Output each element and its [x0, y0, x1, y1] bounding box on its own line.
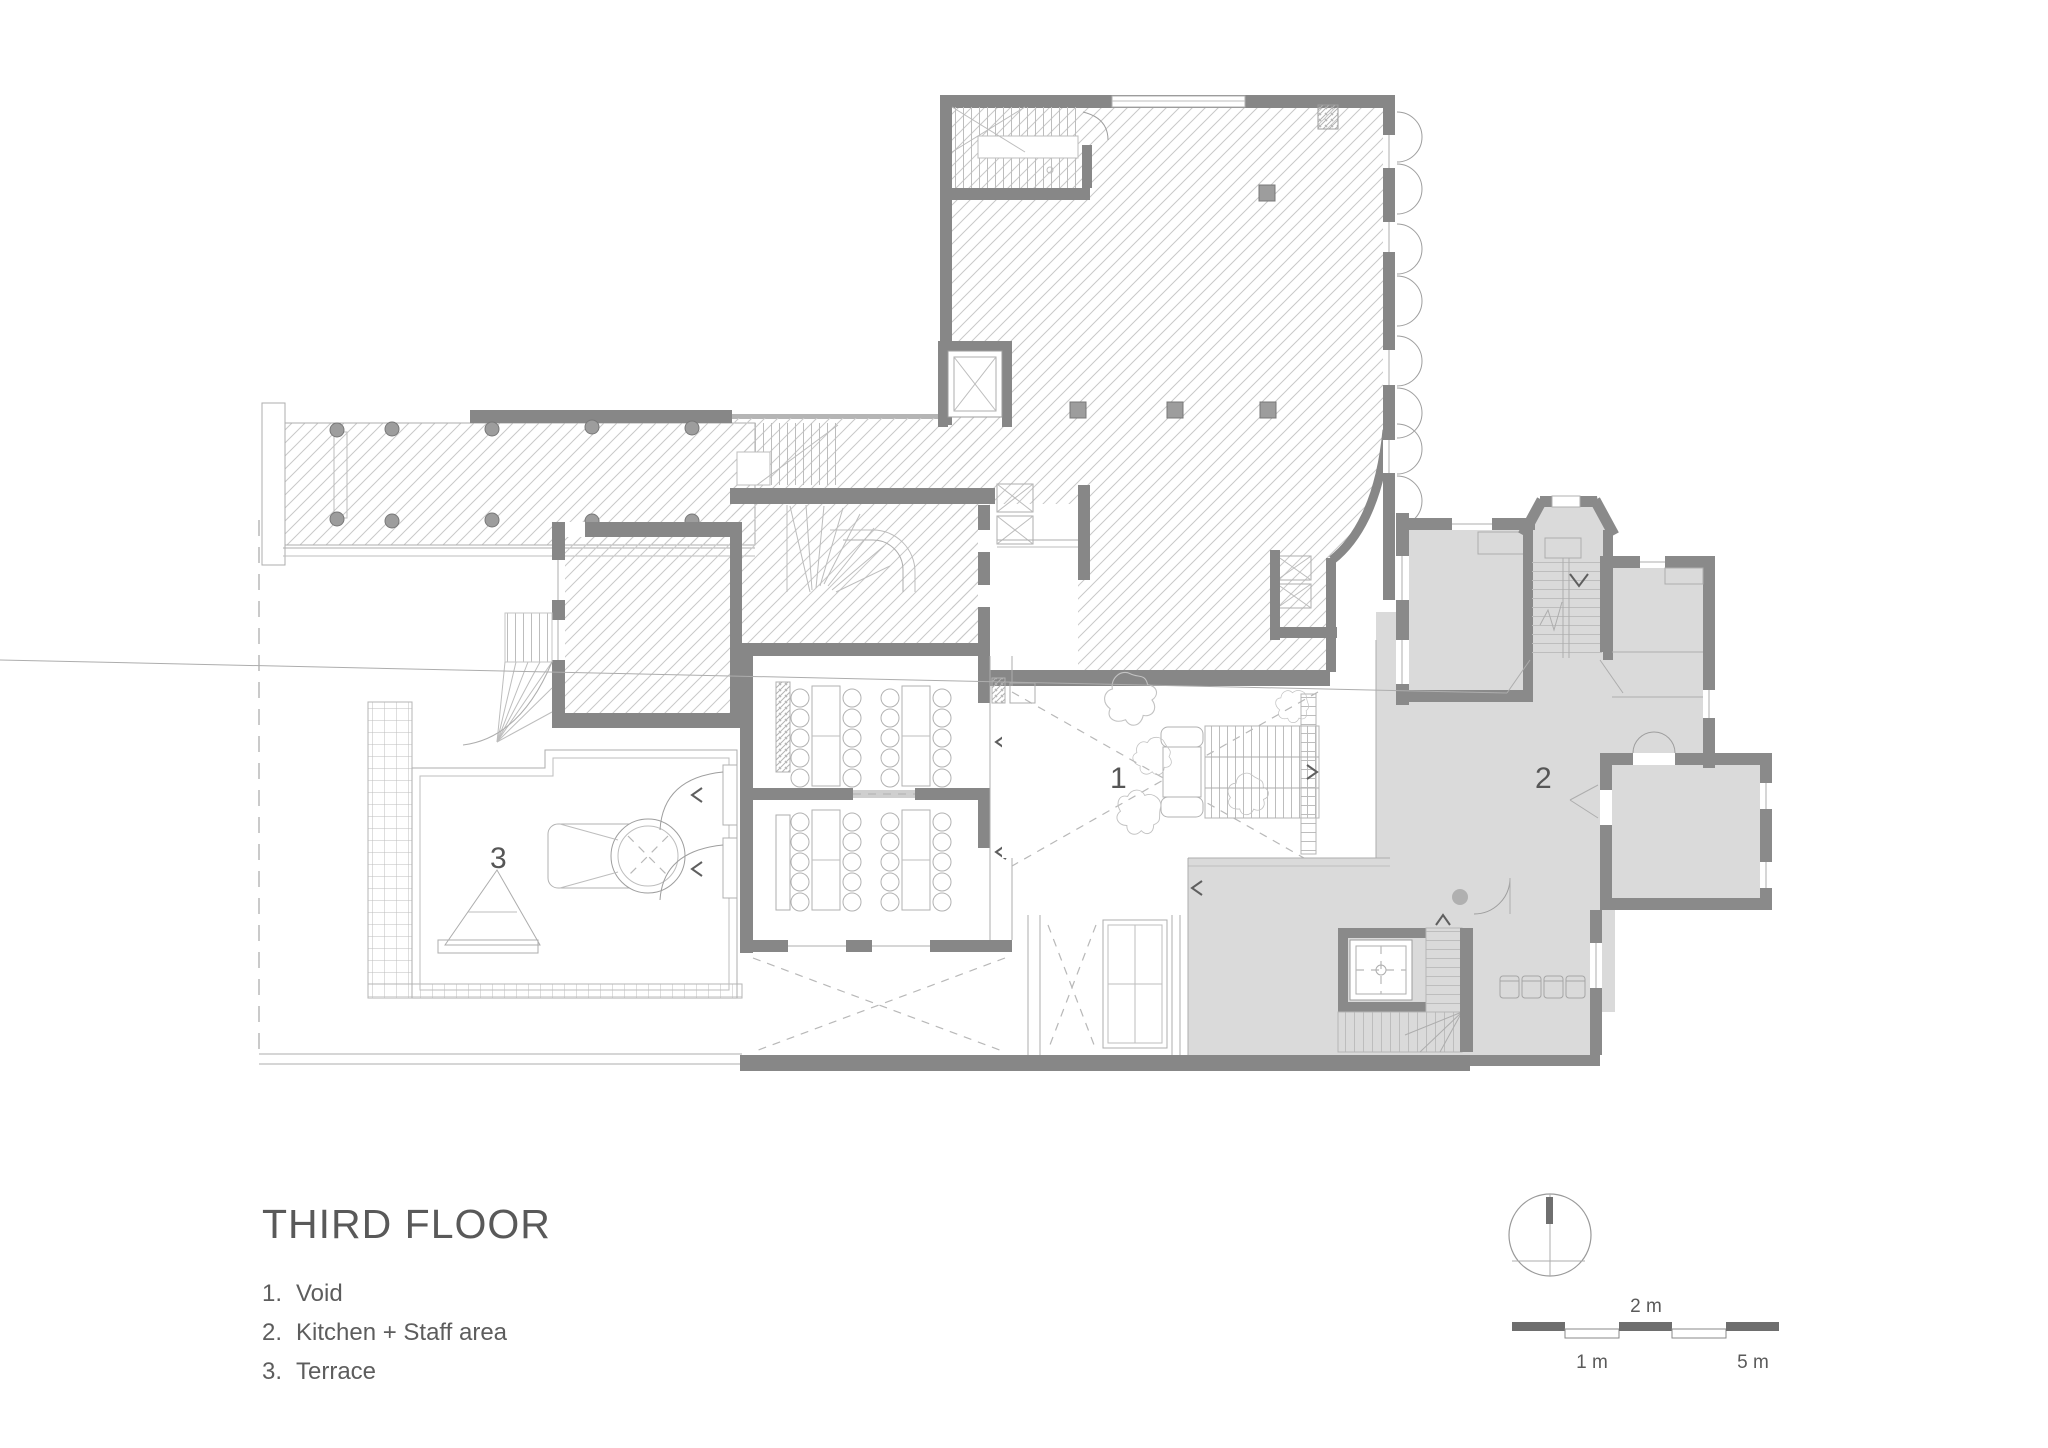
- north-arrow-icon: [1509, 1194, 1591, 1276]
- meeting-rooms: [740, 643, 1012, 953]
- legend-label: Void: [296, 1280, 343, 1308]
- floor-plan-sheet: 1 2 3 2 m 1 m 5 m THIRD FLOOR 1. Void 2.…: [0, 0, 2048, 1448]
- lounge-chair: [438, 870, 540, 953]
- roof-fan-detail: [463, 613, 552, 745]
- tile-strip-bottom: [368, 984, 742, 998]
- legend-number: 2.: [262, 1319, 296, 1347]
- elevator-main: [938, 341, 1012, 427]
- scale-bar: 2 m 1 m 5 m: [1512, 1296, 1779, 1373]
- scale-right-label: 5 m: [1737, 1352, 1769, 1373]
- legend-number: 1.: [262, 1280, 296, 1308]
- legend-label: Kitchen + Staff area: [296, 1319, 507, 1347]
- sofa: [1161, 727, 1203, 817]
- legend-item-terrace: 3. Terrace: [262, 1358, 551, 1386]
- upper-roof-mass: [565, 95, 1422, 713]
- scale-left-label: 1 m: [1576, 1352, 1608, 1373]
- scale-mid-label: 2 m: [1630, 1296, 1662, 1317]
- legend-item-kitchen: 2. Kitchen + Staff area: [262, 1319, 551, 1347]
- legend-item-void: 1. Void: [262, 1280, 551, 1308]
- page-title: THIRD FLOOR: [262, 1201, 551, 1248]
- void-area: [992, 672, 1376, 866]
- terrace-label: 3: [490, 842, 507, 875]
- legend: 1. Void 2. Kitchen + Staff area 3. Terra…: [262, 1280, 551, 1386]
- jacuzzi: [548, 819, 685, 893]
- facade-door-arcs: [1397, 112, 1422, 526]
- legend-label: Terrace: [296, 1358, 376, 1386]
- tile-strip-left: [368, 702, 412, 998]
- wing-elevator-stair: [1338, 915, 1473, 1052]
- kitchen-label: 2: [1535, 762, 1552, 795]
- skylight-panel: [1103, 920, 1167, 1048]
- terrace: [368, 702, 742, 998]
- legend-number: 3.: [262, 1358, 296, 1386]
- title-block: THIRD FLOOR 1. Void 2. Kitchen + Staff a…: [262, 1201, 551, 1397]
- void-label: 1: [1110, 762, 1127, 795]
- round-table: [1452, 889, 1468, 905]
